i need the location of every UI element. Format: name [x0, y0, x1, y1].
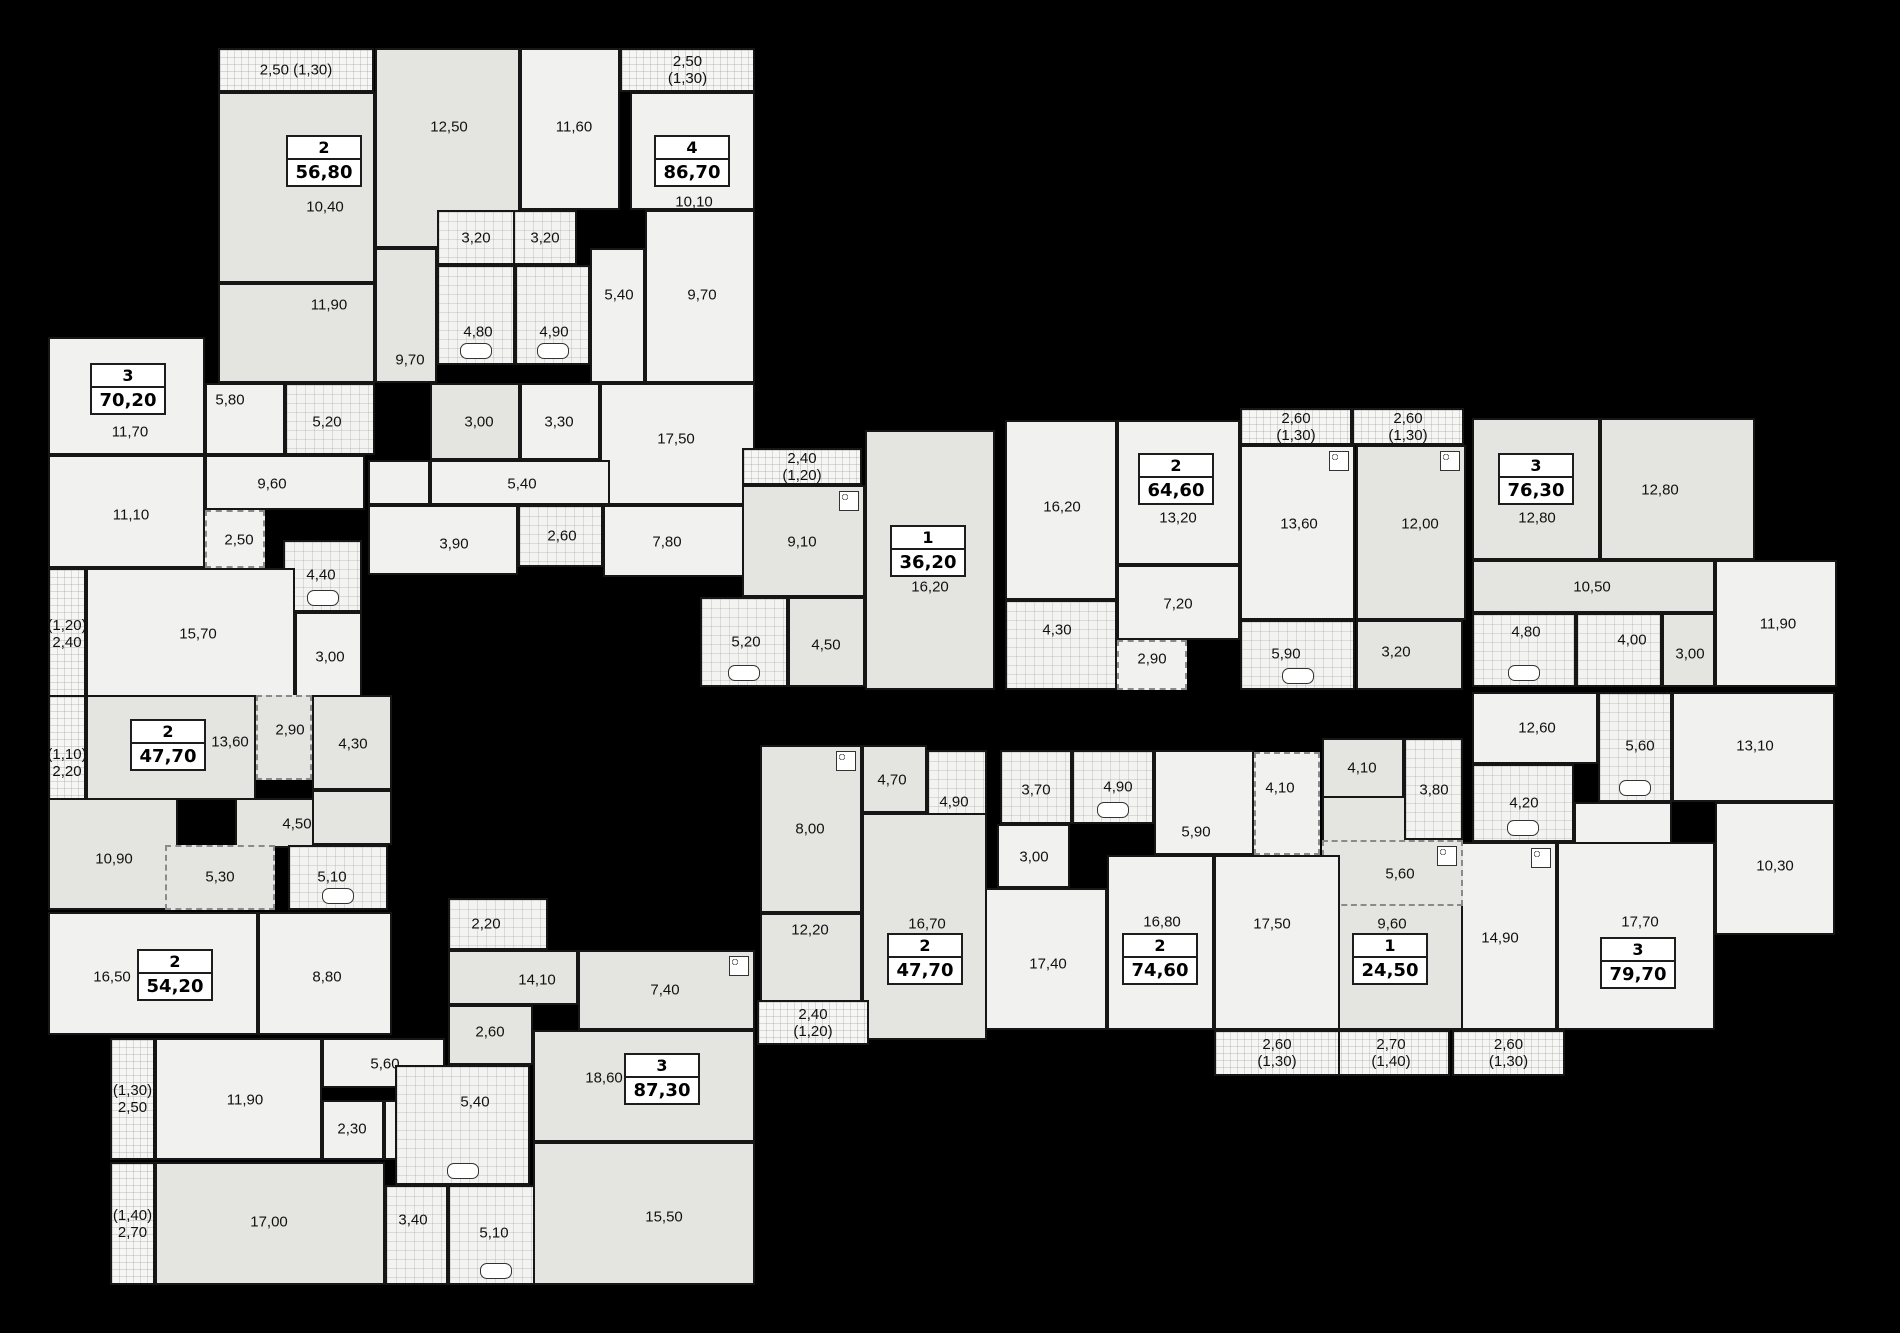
room-area-label: 3,40 [398, 1211, 427, 1228]
room-area-label: 13,60 [211, 733, 249, 750]
room: 5,80 [205, 383, 285, 455]
room-area-label: 11,60 [556, 118, 592, 135]
wet-room: 4,80 [1472, 613, 1576, 687]
room-area-label: 7,20 [1163, 595, 1192, 612]
bathtub-icon [1282, 668, 1314, 684]
room-area-label: 4,90 [1103, 778, 1132, 795]
room: 9,60 [205, 455, 365, 510]
room-area-label: 17,00 [250, 1213, 288, 1230]
room: 3,00 [295, 612, 362, 700]
room-area-label: 15,70 [179, 625, 217, 642]
room-area-label: 4,40 [306, 566, 335, 583]
wet-room: 3,70 [1000, 750, 1072, 824]
room: 3,00 [430, 383, 520, 460]
room-area-label: 4,30 [1042, 621, 1071, 638]
apartment-total-area: 86,70 [656, 160, 728, 185]
apartment-rooms-count: 3 [626, 1055, 698, 1078]
bathtub-icon [1097, 802, 1129, 818]
room-area-label: 2,60 [475, 1023, 504, 1040]
room: 10,50 [1472, 560, 1715, 613]
room-area-label: 3,20 [461, 229, 490, 246]
room: 17,40 [985, 888, 1107, 1030]
stove-icon [1531, 848, 1551, 868]
apartment-rooms-count: 1 [1354, 935, 1426, 958]
room: 3,00 [997, 824, 1070, 888]
apartment-id-box: 254,20 [137, 949, 213, 1001]
apartment-total-area: 64,60 [1140, 478, 1212, 503]
room-area-label: 10,90 [95, 850, 133, 867]
apartment-total-area: 70,20 [92, 388, 164, 413]
room: 12,00 [1356, 445, 1466, 620]
room-area-label: 5,40 [460, 1093, 489, 1110]
room-area-label: (1,30) 2,50 [113, 1082, 152, 1117]
room-area-label: 14,10 [518, 971, 556, 988]
room-area-label: 5,20 [731, 633, 760, 650]
room-area-label: 16,20 [1043, 498, 1081, 515]
room-area-label: 4,50 [282, 815, 311, 832]
room-area-label: 2,60 [547, 527, 576, 544]
wet-room: 4,90 [515, 265, 590, 365]
room-area-label: 5,40 [507, 475, 536, 492]
room: 4,30 [312, 695, 392, 790]
room-area-label: 8,80 [312, 968, 341, 985]
room-area-label: 2,50 (1,30) [260, 61, 333, 78]
room: 4,10 [1254, 752, 1320, 855]
apartment-id-box: 370,20 [90, 363, 166, 415]
balcony: (1,40) 2,70 [110, 1162, 155, 1285]
apartment-total-area: 47,70 [132, 744, 204, 769]
stove-icon [729, 956, 749, 976]
balcony: 2,60 (1,30) [1352, 408, 1464, 445]
room-area-label: 2,60 (1,30) [1247, 1036, 1308, 1071]
wet-room: 5,10 [448, 1185, 543, 1285]
apartment-rooms-count: 2 [1124, 935, 1196, 958]
room-area-label: 3,80 [1419, 781, 1448, 798]
balcony: 2,50 (1,30) [218, 48, 374, 92]
room-area-label: 4,10 [1265, 779, 1294, 796]
room-area-label: 4,80 [463, 323, 492, 340]
wet-room: 5,60 [1598, 692, 1672, 802]
balcony: (1,20) 2,40 [48, 568, 86, 700]
apartment-total-area: 74,60 [1124, 958, 1196, 983]
room-area-label: 5,30 [205, 868, 234, 885]
room-area-label: 9,60 [257, 475, 286, 492]
room-area-label: 3,00 [315, 648, 344, 665]
room-area-label: 8,00 [795, 820, 824, 837]
room-area-label: 12,50 [430, 118, 468, 135]
room: 11,90 [1715, 560, 1837, 687]
room-area-label: 4,90 [539, 323, 568, 340]
room-area-label: 9,70 [687, 286, 716, 303]
bathtub-icon [728, 665, 760, 681]
room-area-label: 3,20 [1381, 643, 1410, 660]
room-area-label: 12,60 [1518, 719, 1556, 736]
apartment-total-area: 56,80 [288, 160, 360, 185]
room-area-label: 4,50 [811, 636, 840, 653]
room: 7,80 [603, 505, 755, 577]
wet-room: 3,80 [1404, 738, 1463, 840]
room: 3,30 [520, 383, 600, 460]
bathtub-icon [322, 888, 354, 904]
room-area-label: 5,90 [1271, 645, 1300, 662]
room: 14,10 [448, 950, 578, 1005]
room-area-label: 3,30 [544, 413, 573, 430]
room-area-label: (1,40) 2,70 [113, 1206, 152, 1241]
apartment-rooms-count: 3 [1500, 455, 1572, 478]
room [312, 790, 392, 845]
room: 7,20 [1117, 565, 1240, 640]
room: 5,40 [590, 248, 645, 383]
wet-room: 4,30 [1005, 600, 1117, 690]
room-area-label: 16,50 [93, 968, 131, 985]
room-area-label: (1,10) 2,20 [47, 745, 86, 780]
room: 11,10 [48, 455, 205, 568]
room-area-label: 13,20 [1159, 509, 1197, 526]
room-area-label: 10,40 [306, 198, 344, 215]
room-area-label: 7,80 [652, 533, 681, 550]
room: 11,90 [218, 283, 375, 383]
room-area-label: 17,50 [657, 430, 695, 447]
room-area-label: 3,00 [1019, 848, 1048, 865]
room-area-label: 2,40 (1,20) [773, 449, 831, 484]
room-area-label: 5,40 [604, 286, 633, 303]
room: 8,80 [258, 912, 392, 1035]
room: 11,90 [155, 1038, 322, 1160]
apartment-id-box: 264,60 [1138, 453, 1214, 505]
room: 5,30 [165, 845, 275, 910]
balcony: 2,40 (1,20) [742, 448, 862, 485]
room: 15,70 [86, 568, 295, 700]
room-area-label: 2,60 (1,30) [1481, 1036, 1536, 1071]
floor-plan: 2,50 (1,30)10,4011,9012,509,703,203,204,… [0, 0, 1900, 1333]
room-area-label: 4,70 [877, 771, 906, 788]
room-area-label: 17,70 [1621, 913, 1659, 930]
room: 3,00 [1662, 613, 1715, 687]
room: 5,60 [1322, 840, 1463, 906]
room-area-label: (1,20) 2,40 [47, 617, 86, 652]
room: 2,50 [205, 510, 265, 568]
bathtub-icon [1507, 820, 1539, 836]
room-area-label: 17,40 [1029, 955, 1067, 972]
room-area-label: 15,50 [645, 1208, 683, 1225]
room-area-label: 4,20 [1509, 794, 1538, 811]
apartment-total-area: 76,30 [1500, 478, 1572, 503]
room-area-label: 9,10 [787, 533, 816, 550]
wet-room: 3,40 [385, 1185, 448, 1285]
room-area-label: 12,80 [1518, 509, 1556, 526]
room-area-label: 11,90 [1760, 615, 1796, 632]
wet-room: 5,90 [1240, 620, 1355, 690]
room-area-label: 5,80 [215, 391, 244, 408]
room: 2,30 [322, 1100, 384, 1160]
room-area-label: 5,60 [1625, 737, 1654, 754]
balcony: 2,60 (1,30) [1452, 1030, 1565, 1076]
room: 9,70 [375, 248, 437, 383]
room-area-label: 13,60 [1280, 515, 1318, 532]
room-area-label: 4,80 [1511, 623, 1540, 640]
room: 5,90 [1154, 750, 1254, 855]
balcony: (1,30) 2,50 [110, 1038, 155, 1160]
room-area-label: 16,70 [908, 915, 946, 932]
room-area-label: 10,30 [1756, 857, 1794, 874]
apartment-total-area: 47,70 [889, 958, 961, 983]
room-area-label: 11,70 [112, 423, 148, 440]
wet-room: 4,80 [437, 265, 515, 365]
room-area-label: 4,10 [1347, 759, 1376, 776]
stove-icon [1440, 451, 1460, 471]
room-area-label: 9,70 [395, 351, 424, 368]
apartment-rooms-count: 2 [889, 935, 961, 958]
bathtub-icon [447, 1163, 479, 1179]
apartment-rooms-count: 2 [139, 951, 211, 974]
apartment-rooms-count: 1 [892, 527, 964, 550]
apartment-rooms-count: 4 [656, 137, 728, 160]
room-area-label: 5,20 [312, 413, 341, 430]
room-area-label: 18,60 [585, 1069, 623, 1086]
wet-room: 4,00 [1576, 613, 1662, 687]
room-area-label: 4,00 [1617, 631, 1646, 648]
room-area-label: 2,50 (1,30) [655, 53, 721, 88]
room-area-label: 2,30 [337, 1120, 366, 1137]
room: 10,90 [48, 798, 178, 910]
room-area-label: 2,20 [471, 915, 500, 932]
room: 10,40 [218, 92, 375, 283]
wet-room: 5,40 [395, 1065, 530, 1185]
room: 16,70 [862, 813, 987, 1040]
room: 16,20 [1005, 420, 1117, 600]
wet-room: 2,60 [518, 505, 603, 567]
room-area-label: 7,40 [650, 981, 679, 998]
room-area-label: 3,00 [1675, 645, 1704, 662]
apartment-id-box: 376,30 [1498, 453, 1574, 505]
room [1574, 802, 1672, 844]
room-area-label: 10,50 [1573, 578, 1611, 595]
balcony: 2,70 (1,40) [1332, 1030, 1450, 1076]
apartment-rooms-count: 2 [288, 137, 360, 160]
room-area-label: 3,00 [464, 413, 493, 430]
room-area-label: 4,30 [338, 735, 367, 752]
room: 4,50 [788, 597, 865, 687]
apartment-id-box: 274,60 [1122, 933, 1198, 985]
balcony: 2,60 (1,30) [1214, 1030, 1340, 1076]
stove-icon [1329, 451, 1349, 471]
room: 9,10 [742, 485, 865, 597]
apartment-id-box: 247,70 [887, 933, 963, 985]
room-area-label: 2,60 (1,30) [1269, 409, 1323, 444]
room: 10,30 [1715, 802, 1835, 935]
room: 17,50 [1214, 855, 1340, 1030]
balcony: 2,60 (1,30) [1240, 408, 1352, 445]
stove-icon [836, 751, 856, 771]
room-area-label: 3,90 [439, 535, 468, 552]
room: 2,90 [256, 695, 312, 780]
room-area-label: 9,60 [1377, 915, 1406, 932]
room-area-label: 3,20 [530, 229, 559, 246]
room: 5,40 [430, 460, 610, 505]
room-area-label: 5,90 [1181, 823, 1210, 840]
room: 3,90 [368, 505, 518, 575]
room: 17,50 [600, 383, 755, 505]
room: 11,60 [520, 48, 620, 210]
wet-room: 2,20 [448, 898, 548, 950]
room-area-label: 12,20 [791, 921, 829, 938]
room-area-label: 2,90 [1137, 650, 1166, 667]
room-area-label: 11,90 [227, 1091, 263, 1108]
apartment-total-area: 79,70 [1602, 962, 1674, 987]
apartment-total-area: 54,20 [139, 974, 211, 999]
room-area-label: 2,60 (1,30) [1381, 409, 1435, 444]
room-area-label: 13,10 [1736, 737, 1774, 754]
room: 8,00 [760, 745, 862, 913]
room: 13,10 [1672, 692, 1835, 802]
apartment-id-box: 256,80 [286, 135, 362, 187]
apartment-id-box: 136,20 [890, 525, 966, 577]
wet-room: 3,20 [513, 210, 577, 265]
wet-room: 5,20 [700, 597, 788, 687]
stove-icon [839, 491, 859, 511]
room: 4,70 [862, 745, 927, 813]
room-area-label: 3,70 [1021, 781, 1050, 798]
room: 9,70 [645, 210, 755, 383]
bathtub-icon [480, 1263, 512, 1279]
apartment-id-box: 379,70 [1600, 937, 1676, 989]
room: 2,60 [448, 1005, 533, 1065]
wet-room: 4,20 [1472, 764, 1574, 842]
room-area-label: 12,00 [1401, 515, 1439, 532]
room-area-label: 11,90 [311, 296, 347, 313]
room-area-label: 5,10 [479, 1224, 508, 1241]
room-area-label: 2,70 (1,40) [1363, 1036, 1420, 1071]
room-area-label: 5,10 [317, 868, 346, 885]
room-area-label: 17,50 [1253, 915, 1291, 932]
room-area-label: 2,40 (1,20) [786, 1005, 840, 1040]
apartment-rooms-count: 2 [132, 721, 204, 744]
apartment-id-box: 486,70 [654, 135, 730, 187]
room-area-label: 2,90 [275, 721, 304, 738]
apartment-rooms-count: 3 [92, 365, 164, 388]
room: 12,60 [1472, 692, 1598, 764]
apartment-rooms-count: 2 [1140, 455, 1212, 478]
room: 7,40 [578, 950, 755, 1030]
wet-room: 5,10 [288, 845, 388, 910]
room-area-label: 14,90 [1481, 929, 1519, 946]
room-area-label: 16,80 [1143, 913, 1181, 930]
room: 15,50 [533, 1142, 755, 1285]
apartment-total-area: 36,20 [892, 550, 964, 575]
bathtub-icon [460, 343, 492, 359]
room: 2,90 [1117, 640, 1187, 690]
room: 3,20 [1356, 620, 1463, 690]
wet-room: 5,20 [285, 383, 375, 455]
room-area-label: 12,80 [1641, 481, 1679, 498]
room-area-label: 10,10 [675, 193, 713, 210]
room: 17,00 [155, 1162, 385, 1285]
bathtub-icon [307, 590, 339, 606]
apartment-rooms-count: 3 [1602, 939, 1674, 962]
apartment-id-box: 247,70 [130, 719, 206, 771]
room-area-label: 2,50 [224, 531, 253, 548]
balcony: 2,40 (1,20) [757, 1000, 869, 1045]
room: 17,70 [1557, 842, 1715, 1030]
room [368, 460, 430, 505]
room-area-label: 4,90 [939, 793, 968, 810]
bathtub-icon [1619, 780, 1651, 796]
stove-icon [1437, 846, 1457, 866]
bathtub-icon [537, 343, 569, 359]
bathtub-icon [1508, 665, 1540, 681]
apartment-total-area: 87,30 [626, 1078, 698, 1103]
apartment-id-box: 387,30 [624, 1053, 700, 1105]
room-area-label: 16,20 [911, 578, 949, 595]
room: 12,80 [1600, 418, 1755, 560]
room-area-label: 11,10 [113, 506, 149, 523]
wet-room: 4,90 [1072, 750, 1154, 824]
apartment-id-box: 124,50 [1352, 933, 1428, 985]
room-area-label: 5,60 [1385, 865, 1414, 882]
wet-room: 3,20 [437, 210, 515, 265]
room: 4,10 [1322, 738, 1404, 798]
apartment-total-area: 24,50 [1354, 958, 1426, 983]
balcony: 2,50 (1,30) [620, 48, 755, 92]
room: 13,60 [1240, 445, 1355, 620]
